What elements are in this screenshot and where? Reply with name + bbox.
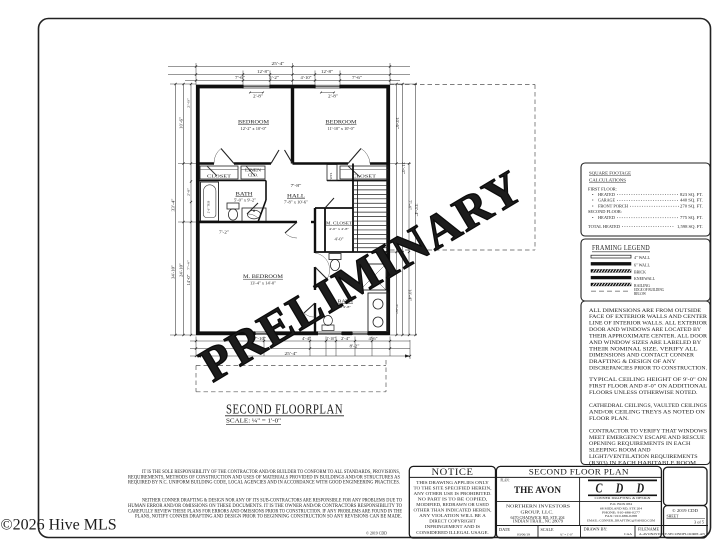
svg-text:12'-8": 12'-8" — [321, 69, 333, 74]
svg-text:SCALE: ¼" = 1'-0": SCALE: ¼" = 1'-0" — [226, 419, 282, 425]
svg-text:2'-6" TUB: 2'-6" TUB — [207, 201, 211, 213]
svg-text:FLOORS UNLESS OTHERWISE NOTED.: FLOORS UNLESS OTHERWISE NOTED. — [589, 391, 698, 396]
svg-text:5'-0" x 9'-2": 5'-0" x 9'-2" — [234, 199, 257, 203]
svg-text:DIRECT COPYRIGHT: DIRECT COPYRIGHT — [429, 519, 476, 524]
svg-text:823 SQ. FT.: 823 SQ. FT. — [680, 192, 703, 197]
svg-text:HEATED: HEATED — [598, 215, 615, 220]
svg-text:C D D: C D D — [596, 480, 650, 495]
svg-text:THE AVON: THE AVON — [514, 486, 561, 496]
svg-text:7'-8": 7'-8" — [291, 184, 303, 188]
svg-text:7'-4": 7'-4" — [187, 259, 191, 270]
svg-text:THIS DRAWING APPLIES ONLY: THIS DRAWING APPLIES ONLY — [416, 480, 489, 485]
svg-text:2'-8": 2'-8" — [328, 95, 339, 99]
svg-text:SHEET: SHEET — [667, 513, 679, 518]
svg-text:7'-6": 7'-6" — [352, 75, 362, 80]
svg-text:HUMAN ERROR AND/OR OMISSIONS O: HUMAN ERROR AND/OR OMISSIONS ON THESE DO… — [128, 504, 402, 509]
svg-text:CLOSET: CLOSET — [352, 174, 376, 179]
svg-text:HEATED: HEATED — [598, 192, 615, 197]
svg-text:10'-6": 10'-6" — [395, 117, 399, 130]
svg-text:1'-10": 1'-10" — [327, 337, 337, 341]
svg-text:10'-6": 10'-6" — [180, 116, 184, 129]
svg-text:REQUIRED BY N.C. UNIFORM BUILD: REQUIRED BY N.C. UNIFORM BUILDING CODE, … — [128, 480, 400, 485]
svg-text:MEET EMERGENCY ESCAPE AND RESC: MEET EMERGENCY ESCAPE AND RESCUE — [589, 436, 705, 441]
svg-text:AND WINDOW SIZES ARE LABELED B: AND WINDOW SIZES ARE LABELED BY — [589, 341, 702, 346]
svg-text:NORTHERN INVESTORS: NORTHERN INVESTORS — [506, 503, 571, 508]
svg-text:12'-8": 12'-8" — [257, 69, 269, 74]
svg-text:4'-6": 4'-6" — [369, 337, 379, 341]
svg-text:CALCULATIONS: CALCULATIONS — [589, 177, 626, 182]
svg-text:440 SQ. FT.: 440 SQ. FT. — [680, 198, 703, 203]
svg-text:INFRINGEMENT AND IS: INFRINGEMENT AND IS — [425, 524, 481, 529]
svg-text:SCALE: SCALE — [541, 527, 554, 532]
svg-text:3 of 5: 3 of 5 — [694, 519, 704, 524]
svg-text:AND/OR CEILING TREYS AS NOTED: AND/OR CEILING TREYS AS NOTED ON — [589, 411, 705, 416]
svg-text:7'-6": 7'-6" — [395, 304, 399, 315]
svg-text:EMAIL: CONNER_DRAFTING@YAHOO.C: EMAIL: CONNER_DRAFTING@YAHOO.COM — [587, 519, 655, 523]
svg-text:8'-2": 8'-2" — [350, 344, 361, 348]
svg-text:5'-2": 5'-2" — [269, 75, 279, 80]
svg-text:7'-8" x 10'-6": 7'-8" x 10'-6" — [284, 201, 309, 205]
svg-text:FRAMING LEGEND: FRAMING LEGEND — [592, 245, 650, 252]
svg-text:DATE: DATE — [499, 527, 510, 532]
svg-text:SLEEPING ROOM AND: SLEEPING ROOM AND — [589, 449, 651, 454]
svg-text:2'-8": 2'-8" — [187, 187, 191, 196]
svg-text:FACE OF EXTERIOR WALLS AND CEN: FACE OF EXTERIOR WALLS AND CENTER — [589, 315, 708, 320]
svg-text:ALL DIMENSIONS ARE FROM OUTSID: ALL DIMENSIONS ARE FROM OUTSIDE — [589, 309, 701, 314]
svg-text:34'-10": 34'-10" — [172, 264, 176, 279]
svg-text:ANY OTHER USE IS PROHIBITED.: ANY OTHER USE IS PROHIBITED. — [414, 491, 492, 496]
svg-text:LIGHT/VENTILATION REQUIREMENTS: LIGHT/VENTILATION REQUIREMENTS — [589, 455, 698, 460]
svg-text:2'-4": 2'-4" — [341, 337, 351, 341]
svg-text:7'-4": 7'-4" — [408, 200, 412, 211]
svg-text:DIMENSIONS AND CONTACT CONNER: DIMENSIONS AND CONTACT CONNER — [589, 354, 695, 359]
svg-text:11'-10" x 10'-0": 11'-10" x 10'-0" — [328, 127, 355, 131]
svg-text:DRAFTING & DESIGN OF ANY: DRAFTING & DESIGN OF ANY — [589, 360, 676, 365]
svg-text:7'-2": 7'-2" — [219, 231, 230, 235]
svg-text:ANY VIOLATION WILL BE A: ANY VIOLATION WILL BE A — [419, 513, 487, 518]
svg-text:4'-0": 4'-0" — [335, 238, 345, 242]
svg-text:270 SQ. FT.: 270 SQ. FT. — [680, 203, 703, 208]
svg-text:BELOW: BELOW — [634, 292, 646, 296]
svg-text:4" WALL: 4" WALL — [634, 256, 651, 260]
svg-text:FIRST FLOOR:: FIRST FLOOR: — [588, 186, 617, 191]
svg-text:NOTICE: NOTICE — [432, 467, 474, 477]
svg-text:4'-0" x 4'-8": 4'-0" x 4'-8" — [329, 227, 350, 231]
svg-text:LINEN: LINEN — [245, 168, 261, 173]
svg-text:© 2019 CDD: © 2019 CDD — [366, 531, 387, 536]
svg-text:LINE OF INTERIOR WALLS. ALL EX: LINE OF INTERIOR WALLS. ALL EXTERIOR — [589, 322, 708, 327]
svg-text:THEIR NOMINAL SIZE. VERIFY ALL: THEIR NOMINAL SIZE. VERIFY ALL — [589, 347, 698, 352]
svg-text:7'-6": 7'-6" — [235, 75, 245, 80]
svg-text:PLANS, NOTIFY CONNER DRAFTING: PLANS, NOTIFY CONNER DRAFTING AND DESIGN… — [135, 515, 402, 520]
svg-text:DRAWN BY:: DRAWN BY: — [584, 526, 608, 531]
svg-text:12'-2" x 10'-0": 12'-2" x 10'-0" — [241, 127, 268, 131]
svg-text:CONSIDERED ILLEGAL USAGE.: CONSIDERED ILLEGAL USAGE. — [416, 530, 489, 535]
svg-text:4'-10": 4'-10" — [301, 75, 312, 80]
svg-text:CONTRACTOR TO VERIFY THAT WIND: CONTRACTOR TO VERIFY THAT WINDOWS — [589, 429, 707, 434]
svg-text:TOTAL HEATED: TOTAL HEATED — [588, 224, 620, 229]
svg-text:FAX: 910-686-0288: FAX: 910-686-0288 — [605, 514, 637, 518]
svg-text:NEITHER CONNER DRAFTING & DESI: NEITHER CONNER DRAFTING & DESIGN NOR ANY… — [142, 499, 402, 504]
svg-text:DISCREPANCIES PRIOR TO CONSTRU: DISCREPANCIES PRIOR TO CONSTRUCTION. — [589, 367, 707, 372]
svg-text:TYPICAL CEILING HEIGHT OF 9'-0: TYPICAL CEILING HEIGHT OF 9'-0" ON — [589, 378, 708, 383]
svg-text:KNEEWALL: KNEEWALL — [634, 277, 656, 281]
svg-text:SQUARE FOOTAGE: SQUARE FOOTAGE — [589, 171, 631, 176]
svg-text:GARAGE: GARAGE — [598, 198, 615, 203]
svg-text:33'-4": 33'-4" — [171, 198, 176, 211]
svg-text:M. CLOSET: M. CLOSET — [326, 221, 353, 226]
svg-text:6" WALL: 6" WALL — [634, 263, 651, 267]
svg-text:A-AVON2STORY-SECONDFLOORPLAN: A-AVON2STORY-SECONDFLOORPLAN — [639, 532, 706, 536]
svg-text:FIRST FLOOR AND 8'-0" ON ADDIT: FIRST FLOOR AND 8'-0" ON ADDITIONAL — [589, 385, 707, 390]
svg-text:775 SQ. FT.: 775 SQ. FT. — [680, 215, 703, 220]
svg-text:CLOSET: CLOSET — [207, 174, 231, 179]
svg-text:2'-8": 2'-8" — [187, 97, 191, 108]
svg-text:03/06/19: 03/06/19 — [517, 532, 530, 536]
svg-text:OPENING REQUIREMENTS IN EACH: OPENING REQUIREMENTS IN EACH — [589, 442, 691, 447]
svg-text:BRICK: BRICK — [634, 271, 646, 275]
svg-text:24'-10": 24'-10" — [180, 262, 184, 277]
svg-text:©2026 Hive MLS: ©2026 Hive MLS — [1, 517, 117, 534]
svg-text:CATHEDRAL CEILINGS, VAULTED CE: CATHEDRAL CEILINGS, VAULTED CEILINGS — [589, 404, 707, 409]
svg-text:FILENAME: FILENAME — [638, 526, 659, 531]
svg-text:SECOND FLOORPLAN: SECOND FLOORPLAN — [226, 402, 343, 417]
svg-text:THEIR APPROXIMATE CENTER. ALL: THEIR APPROXIMATE CENTER. ALL DOOR — [589, 334, 708, 339]
svg-text:CAREFULLY REVIEW THESE PLANS F: CAREFULLY REVIEW THESE PLANS FOR ERRORS … — [128, 509, 402, 514]
svg-text:PLAN:: PLAN: — [501, 478, 510, 483]
svg-text:W.H.: W.H. — [329, 172, 333, 179]
svg-text:DOOR AND WINDOWS ARE LOCATED B: DOOR AND WINDOWS ARE LOCATED BY — [589, 328, 702, 333]
svg-text:10'-4": 10'-4" — [408, 289, 412, 302]
svg-text:CAA: CAA — [624, 532, 633, 536]
svg-text:SECOND FLOOR:: SECOND FLOOR: — [588, 209, 622, 214]
svg-text:CONNER DRAFTING & DESIGN: CONNER DRAFTING & DESIGN — [595, 496, 652, 500]
svg-text:2'-8": 2'-8" — [253, 95, 264, 99]
svg-text:13'-4" x 14'-0": 13'-4" x 14'-0" — [250, 282, 277, 286]
svg-text:¼" = 1'-0": ¼" = 1'-0" — [560, 532, 574, 536]
svg-text:© 2019 CDD: © 2019 CDD — [672, 508, 698, 513]
svg-text:21'-0": 21'-0" — [401, 162, 405, 175]
svg-text:14'-0": 14'-0" — [187, 274, 191, 286]
svg-text:FLOOR PLAN.: FLOOR PLAN. — [589, 417, 629, 422]
svg-text:SECOND FLOOR PLAN: SECOND FLOOR PLAN — [529, 467, 629, 477]
svg-text:FRONT PORCH: FRONT PORCH — [598, 203, 628, 208]
svg-text:25'-4": 25'-4" — [272, 61, 285, 66]
